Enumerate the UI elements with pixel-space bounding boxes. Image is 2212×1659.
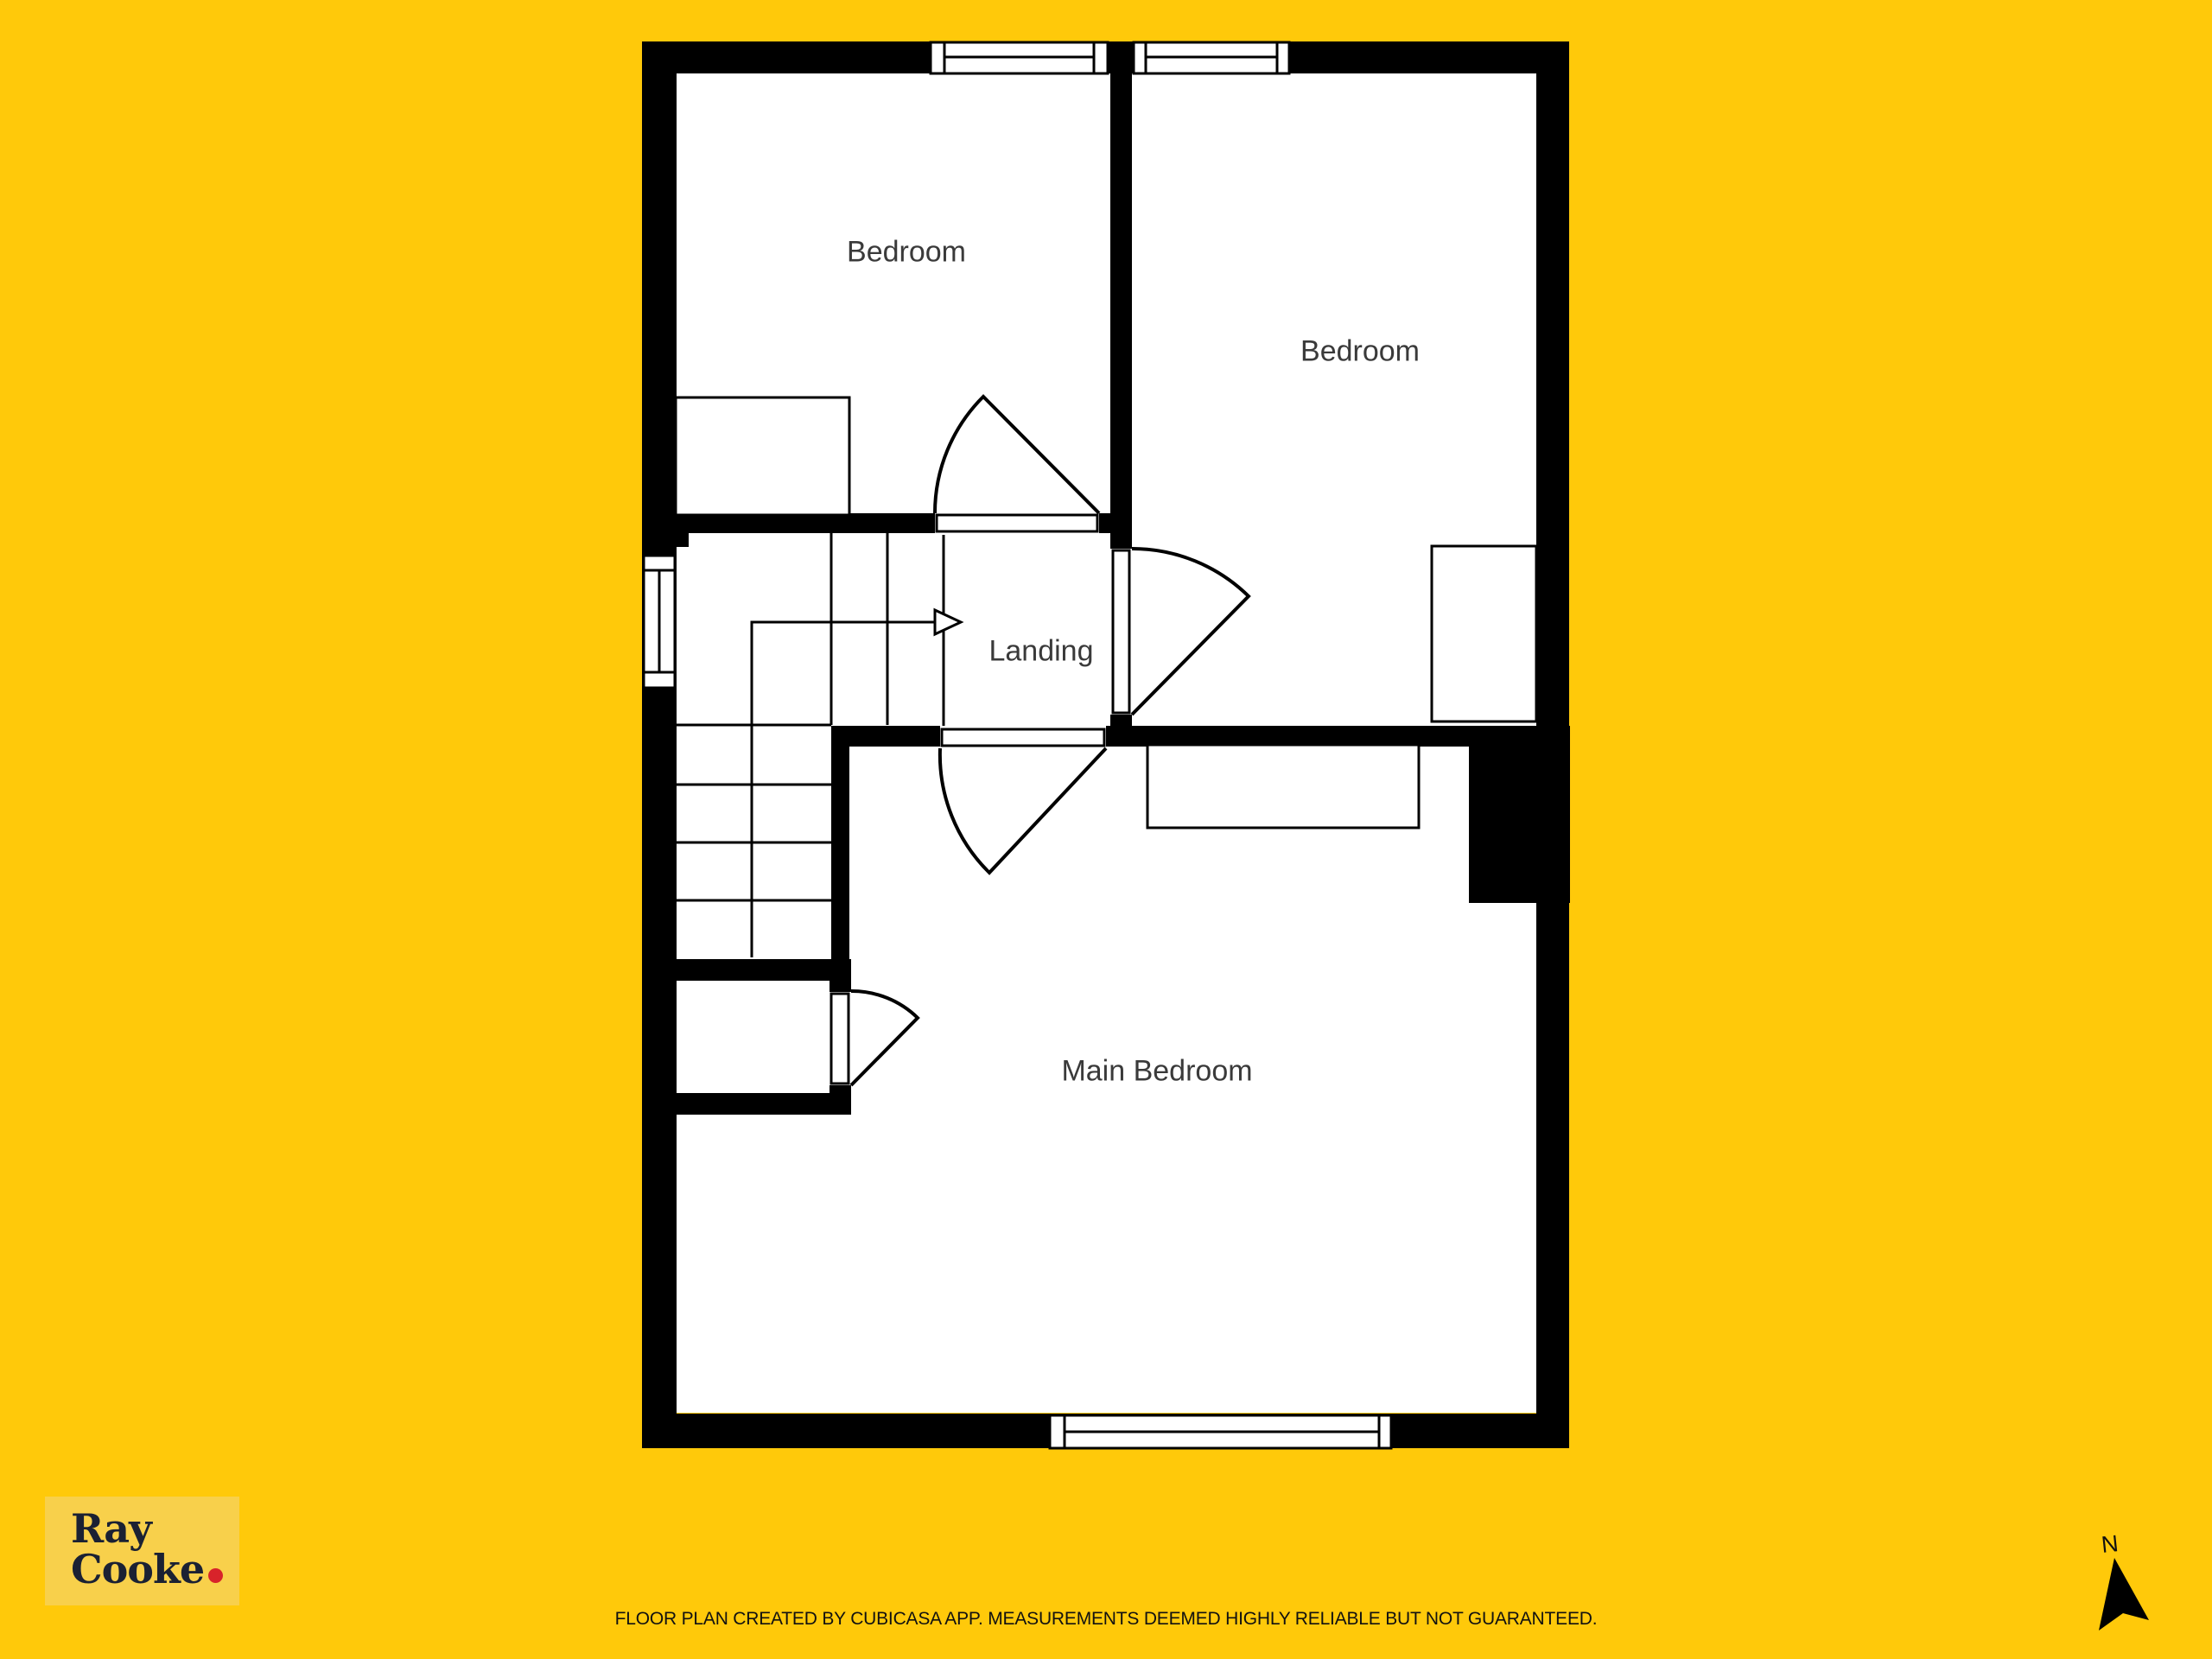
floor-plan-drawing	[0, 0, 2212, 1659]
north-label: N	[2100, 1530, 2120, 1559]
room-label-landing: Landing	[988, 635, 1093, 669]
room-label-bedroom-left: Bedroom	[847, 236, 966, 270]
logo-dot	[208, 1568, 223, 1583]
wardrobe-main-bedroom	[1147, 745, 1419, 828]
logo-line-2: Cooke	[71, 1549, 239, 1590]
room-label-main-bedroom: Main Bedroom	[1061, 1055, 1252, 1089]
window-left-landing	[644, 556, 675, 688]
room-label-bedroom-right: Bedroom	[1300, 335, 1420, 369]
floor-plan-page: Bedroom Bedroom Landing Main Bedroom Ray…	[0, 0, 2212, 1659]
north-compass: N	[2074, 1521, 2212, 1659]
disclaimer-text: FLOOR PLAN CREATED BY CUBICASA APP. MEAS…	[0, 1609, 2212, 1630]
window-bottom-main-bedroom	[1050, 1415, 1391, 1448]
north-arrow-icon	[2074, 1521, 2212, 1659]
closet-bedroom-right	[1432, 546, 1536, 721]
logo-line-1: Ray	[71, 1509, 239, 1549]
window-top-left	[931, 42, 1108, 73]
window-top-right	[1134, 42, 1289, 73]
agency-logo: Ray Cooke	[45, 1497, 239, 1605]
closet-bedroom-left	[676, 397, 849, 515]
